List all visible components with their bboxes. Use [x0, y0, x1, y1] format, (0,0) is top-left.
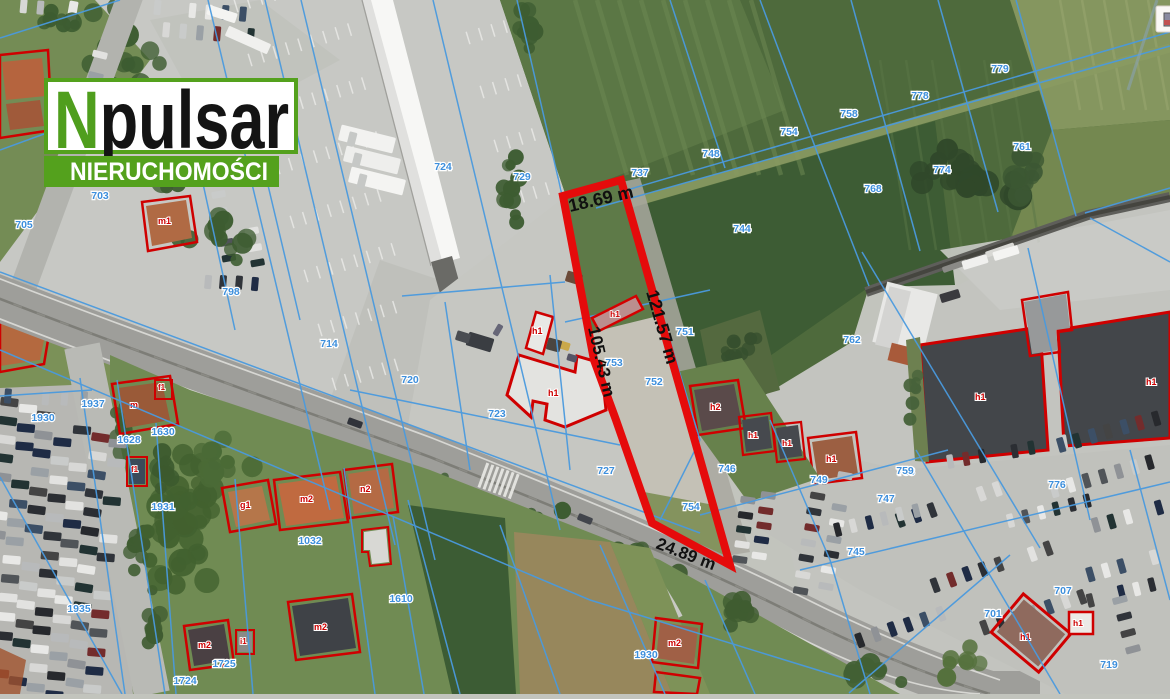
svg-text:758: 758: [840, 108, 858, 120]
svg-text:1937: 1937: [81, 398, 105, 410]
svg-text:714: 714: [320, 338, 338, 350]
svg-text:753: 753: [605, 357, 623, 369]
svg-text:m2: m2: [668, 638, 681, 648]
svg-text:h1: h1: [1073, 618, 1083, 628]
svg-text:1032: 1032: [298, 535, 322, 547]
svg-text:759: 759: [896, 465, 914, 477]
svg-text:i1: i1: [240, 637, 247, 646]
svg-text:761: 761: [1013, 141, 1031, 153]
svg-text:m2: m2: [314, 622, 327, 632]
svg-text:745: 745: [847, 546, 865, 558]
svg-text:779: 779: [991, 63, 1009, 75]
svg-text:m2: m2: [198, 640, 211, 650]
svg-text:h1: h1: [826, 454, 837, 464]
svg-text:751: 751: [676, 326, 694, 338]
svg-text:754: 754: [780, 126, 798, 138]
svg-text:1930: 1930: [31, 412, 55, 424]
svg-text:744: 744: [733, 223, 751, 235]
svg-text:1628: 1628: [117, 434, 141, 446]
svg-text:h1: h1: [610, 309, 620, 319]
svg-text:f1: f1: [158, 383, 166, 392]
svg-text:705: 705: [15, 219, 33, 231]
svg-text:746: 746: [718, 463, 736, 475]
svg-text:748: 748: [702, 148, 720, 160]
svg-text:NIERUCHOMOŚCI: NIERUCHOMOŚCI: [70, 157, 268, 186]
svg-text:1931: 1931: [151, 501, 175, 513]
svg-text:720: 720: [401, 374, 419, 386]
svg-text:h1: h1: [1146, 377, 1157, 387]
svg-text:754: 754: [682, 501, 700, 513]
svg-text:707: 707: [1054, 585, 1072, 597]
svg-text:1724: 1724: [173, 675, 197, 687]
svg-text:762: 762: [843, 334, 861, 346]
svg-text:774: 774: [933, 164, 951, 176]
svg-text:n2: n2: [360, 484, 371, 494]
svg-text:747: 747: [877, 493, 895, 505]
svg-text:h1: h1: [975, 392, 986, 402]
svg-text:f1: f1: [131, 465, 139, 474]
svg-text:1630: 1630: [151, 426, 175, 438]
svg-text:749: 749: [810, 474, 828, 486]
svg-text:1930: 1930: [634, 649, 658, 661]
svg-text:752: 752: [645, 376, 663, 388]
svg-text:778: 778: [911, 90, 929, 102]
svg-text:768: 768: [864, 183, 882, 195]
svg-text:703: 703: [91, 190, 109, 202]
svg-text:h2: h2: [710, 402, 721, 412]
svg-text:719: 719: [1100, 659, 1118, 671]
svg-text:g1: g1: [240, 500, 251, 510]
svg-text:723: 723: [488, 408, 506, 420]
svg-text:798: 798: [222, 286, 240, 298]
svg-text:m1: m1: [158, 216, 171, 226]
svg-text:1935: 1935: [67, 603, 91, 615]
svg-text:Npulsar: Npulsar: [54, 74, 289, 166]
svg-text:701: 701: [984, 608, 1002, 620]
svg-text:1725: 1725: [212, 658, 236, 670]
svg-text:724: 724: [434, 161, 452, 173]
svg-text:1610: 1610: [389, 593, 413, 605]
svg-text:h1: h1: [532, 326, 543, 336]
svg-text:729: 729: [513, 171, 531, 183]
svg-text:737: 737: [631, 167, 649, 179]
svg-text:m2: m2: [300, 494, 313, 504]
svg-text:h1: h1: [548, 388, 559, 398]
svg-text:h1: h1: [782, 438, 792, 448]
svg-text:h1: h1: [748, 430, 758, 440]
svg-text:776: 776: [1048, 479, 1066, 491]
svg-text:727: 727: [597, 465, 615, 477]
